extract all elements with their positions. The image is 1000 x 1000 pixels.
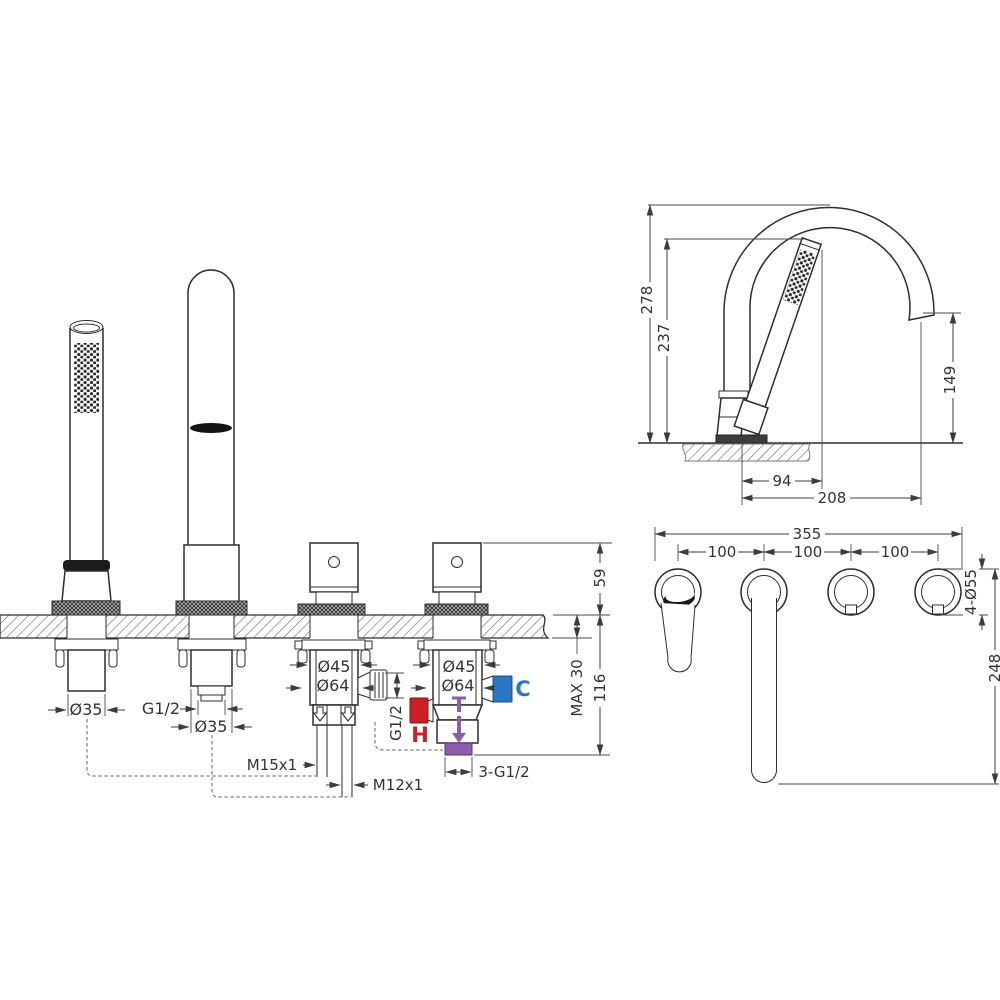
side-elevation-view: 278 237 149 94 208 <box>638 205 963 507</box>
dim-label-cartridge-dia: Ø45 <box>318 657 351 676</box>
plan-dim-hole-dia: 4-Ø55 <box>941 554 999 630</box>
hot-label: H <box>411 723 429 747</box>
outlet-route <box>375 722 443 750</box>
handle-tab <box>846 605 857 614</box>
dim-label-depth: 248 <box>986 654 1000 683</box>
front-elevation-view: Ø45 Ø64 Ø45 Ø64 H C T Ø35 <box>0 270 612 797</box>
hot-inlet-port <box>410 698 428 723</box>
dim-handshower-dia: Ø35 <box>48 694 125 719</box>
dim-label-overall-width: 355 <box>793 525 822 543</box>
dim-label-port-thread: G1/2 <box>387 705 405 741</box>
spout-plan <box>752 598 777 783</box>
dim-label-cartridge-dia: Ø45 <box>443 657 476 676</box>
dim-label-depth-below: 116 <box>591 674 609 703</box>
plan-holes <box>655 569 961 615</box>
dim-label-spout-height: 149 <box>941 366 959 395</box>
diverter-gasket <box>298 604 365 615</box>
handshower-plan <box>661 587 696 672</box>
handshower-escutcheon <box>52 601 120 615</box>
dim-label-handshower-dia: Ø35 <box>70 700 103 719</box>
dim-label-spout-offset: 94 <box>772 472 791 490</box>
dim-label-hose-m15: M15x1 <box>247 756 297 774</box>
deck-strip <box>683 444 810 461</box>
dim-outlet-thread: 3-G1/2 <box>445 757 530 781</box>
handshower-holder-flange <box>719 391 748 398</box>
cold-label: C <box>515 677 530 701</box>
mixed-label: T <box>452 693 467 717</box>
dim-label-outlet-thread: 3-G1/2 <box>478 763 529 781</box>
dim-label-hole-spacing: 100 <box>794 543 823 561</box>
dim-label-height-above: 59 <box>591 568 609 587</box>
dim-label-deck-max: MAX 30 <box>568 659 586 716</box>
plan-view: 355 100 100 100 <box>655 525 1000 784</box>
bath-mixer-drawing: Ø45 Ø64 Ø45 Ø64 H C T Ø35 <box>0 0 1000 1000</box>
dim-port-thread: G1/2 <box>385 673 405 745</box>
dim-label-spout-thread: G1/2 <box>142 699 180 718</box>
handshower-spray-face-side <box>783 249 816 305</box>
technical-drawing-page: Ø45 Ø64 Ø45 Ø64 H C T Ø35 <box>0 0 1000 1000</box>
dim-label-hole-spacing: 100 <box>881 543 910 561</box>
dim-label-body-dia: Ø64 <box>317 676 350 695</box>
dim-label-total-reach: 208 <box>818 489 847 507</box>
dim-hose-m15: M15x1 <box>247 756 315 774</box>
spout-aerator-band <box>190 423 232 433</box>
spout-escutcheon <box>176 601 247 615</box>
handshower-spray-face <box>74 343 99 413</box>
valve-dimensions: Ø45 Ø64 Ø45 Ø64 <box>286 657 500 695</box>
mixed-outlet-port <box>445 743 472 755</box>
dim-label-hole-spacing: 100 <box>708 543 737 561</box>
dim-label-total-height: 278 <box>638 286 656 315</box>
dim-label-spout-dia: Ø35 <box>195 717 228 736</box>
dim-hose-m12: M12x1 <box>326 776 423 794</box>
dim-label-hose-m12: M12x1 <box>373 776 423 794</box>
plan-dim-spacing: 100 100 100 <box>678 543 938 561</box>
dim-spout-thread: G1/2 <box>142 699 243 718</box>
cold-inlet-port <box>493 676 512 702</box>
mixer-gasket <box>425 604 488 615</box>
handle-tab <box>933 605 944 614</box>
dim-label-handshower-height: 237 <box>655 324 673 353</box>
dim-label-hole-diameter: 4-Ø55 <box>962 569 980 615</box>
